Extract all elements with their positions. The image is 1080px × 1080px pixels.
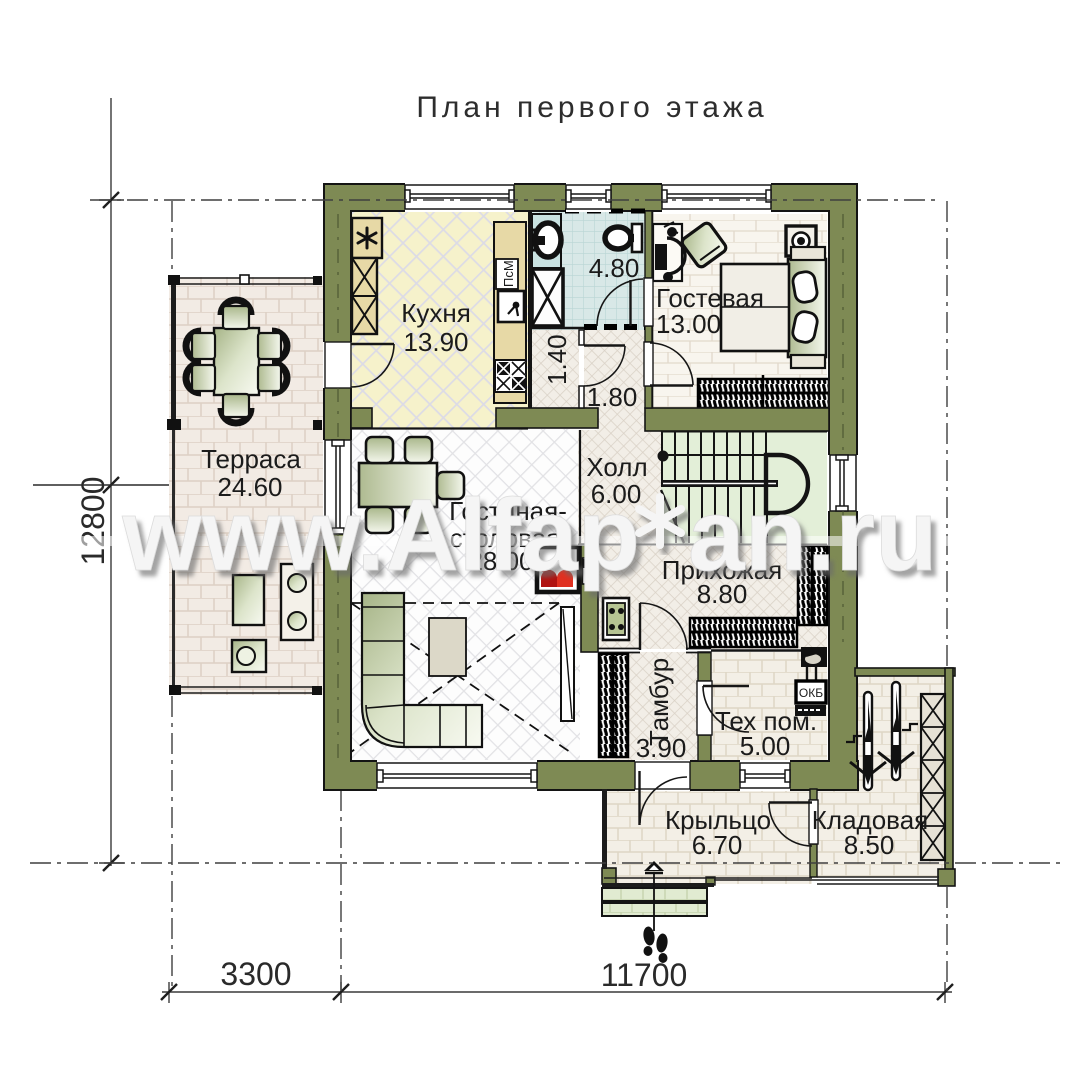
svg-text:11700: 11700: [601, 957, 688, 993]
svg-text:План первого этажа: План первого этажа: [416, 91, 767, 124]
svg-text:4.80: 4.80: [589, 253, 640, 283]
svg-text:3.90: 3.90: [636, 733, 687, 763]
svg-text:13.90: 13.90: [403, 327, 468, 357]
svg-text:1.80: 1.80: [587, 382, 638, 412]
svg-text:6.70: 6.70: [692, 830, 743, 860]
svg-text:an.ru: an.ru: [688, 478, 937, 592]
svg-text:www.Alfap: www.Alfap: [121, 478, 640, 592]
svg-text:1.40: 1.40: [542, 334, 572, 385]
svg-text:3300: 3300: [220, 956, 291, 992]
svg-text:ОКБ: ОКБ: [799, 686, 823, 700]
svg-text:Кухня: Кухня: [401, 298, 471, 328]
svg-text:13.00: 13.00: [656, 309, 721, 339]
svg-text:5.00: 5.00: [740, 731, 791, 761]
svg-text:Терраса: Терраса: [201, 444, 301, 474]
svg-text:8.50: 8.50: [844, 830, 895, 860]
svg-text:ПсМ: ПсМ: [501, 260, 516, 287]
svg-text:12800: 12800: [75, 477, 111, 566]
